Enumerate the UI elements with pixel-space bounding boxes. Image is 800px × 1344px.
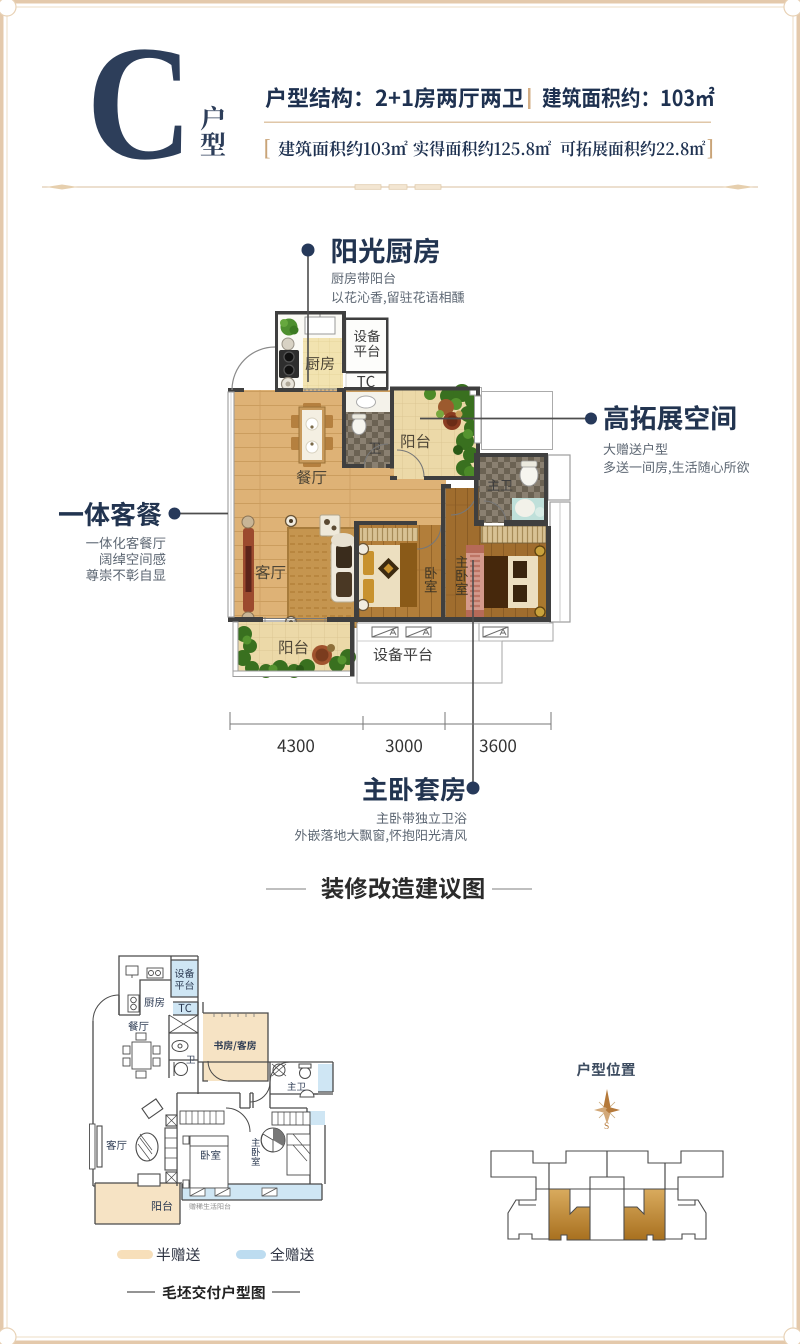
svg-text:C: C (87, 12, 193, 194)
svg-text:S: S (604, 1122, 609, 1132)
